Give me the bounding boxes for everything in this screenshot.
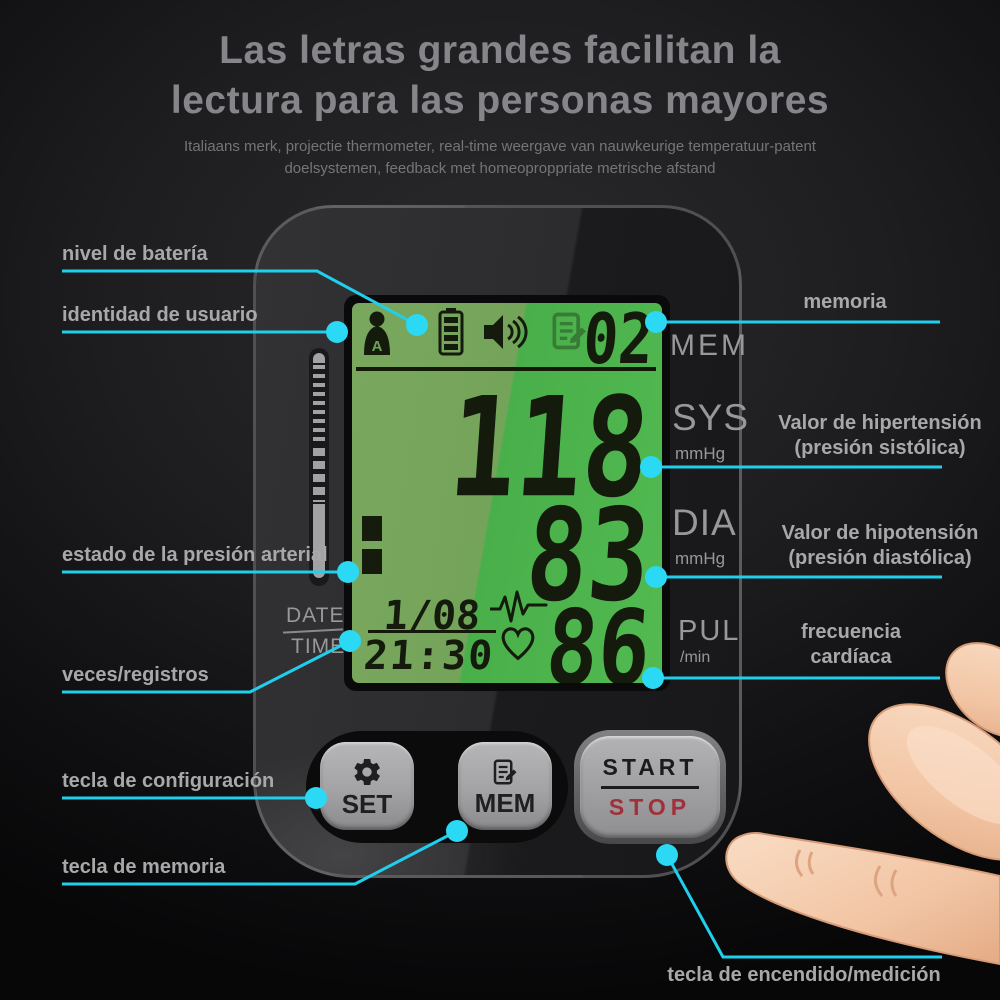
knuckle-crease	[796, 850, 813, 876]
label-memory: memoria	[700, 290, 990, 315]
knuckle-crease	[875, 866, 896, 896]
start-stop-button[interactable]: START STOP	[580, 736, 720, 838]
finger-highlight	[891, 708, 1000, 841]
label-set-key: tecla de configuración	[62, 769, 274, 794]
user-icon: A	[360, 311, 394, 357]
label-systolic: Valor de hipertensión (presión sistólica…	[735, 411, 1000, 461]
bp-scale-strip-ticks	[313, 448, 325, 502]
page-subtitle: Italiaans merk, projectie thermometer, r…	[0, 136, 1000, 180]
label-battery-level: nivel de batería	[62, 242, 208, 267]
speaker-icon	[482, 313, 528, 351]
heart-icon	[496, 621, 540, 665]
memo-icon	[490, 757, 520, 787]
stop-label: STOP	[609, 796, 691, 819]
set-button[interactable]: SET	[320, 742, 414, 830]
start-label: START	[603, 756, 698, 779]
label-heart-rate: frecuencia cardíaca	[706, 620, 996, 670]
lcd-screen: A 02 118 83 1/08	[352, 303, 662, 683]
page-title: Las letras grandes facilitan la lectura …	[0, 26, 1000, 126]
start-stop-divider	[601, 786, 699, 789]
date-print-label: DATE	[286, 605, 344, 626]
bp-status-indicator-segment	[362, 516, 382, 541]
dia-label: DIA	[672, 504, 737, 541]
title-line-2: lectura para las personas mayores	[0, 76, 1000, 126]
bp-scale-strip	[313, 353, 325, 363]
dia-unit-label: mmHg	[675, 550, 725, 567]
label-records: veces/registros	[62, 663, 209, 688]
label-memory-key: tecla de memoria	[62, 855, 225, 880]
bp-scale-strip-ticks	[313, 365, 325, 446]
gear-icon	[351, 756, 383, 788]
label-bp-status: estado de la presión arterial	[62, 543, 328, 568]
mem-button-label: MEM	[475, 790, 536, 816]
subtitle-line-1: Italiaans merk, projectie thermometer, r…	[0, 136, 1000, 158]
index-finger	[726, 833, 1000, 964]
label-power-key: tecla de encendido/medición	[654, 963, 954, 988]
product-infographic: Las letras grandes facilitan la lectura …	[0, 0, 1000, 1000]
svg-text:A: A	[372, 338, 383, 355]
mem-unit-label: MEM	[670, 331, 749, 361]
sys-unit-label: mmHg	[675, 445, 725, 462]
curled-finger	[842, 674, 1000, 890]
bp-status-indicator-segment	[362, 549, 382, 574]
label-diastolic: Valor de hipotensión (presión diastólica…	[735, 521, 1000, 571]
set-button-label: SET	[342, 791, 393, 817]
mem-button[interactable]: MEM	[458, 742, 552, 830]
title-line-1: Las letras grandes facilitan la	[0, 26, 1000, 76]
label-user-identity: identidad de usuario	[62, 303, 258, 328]
battery-icon	[438, 308, 464, 356]
memory-count-value: 02	[581, 304, 656, 374]
time-print-label: TIME	[291, 636, 345, 657]
pulse-value: 86	[543, 597, 654, 683]
time-value: 21:30	[355, 636, 504, 676]
subtitle-line-2: doelsystemen, feedback met homeoproppria…	[0, 158, 1000, 180]
